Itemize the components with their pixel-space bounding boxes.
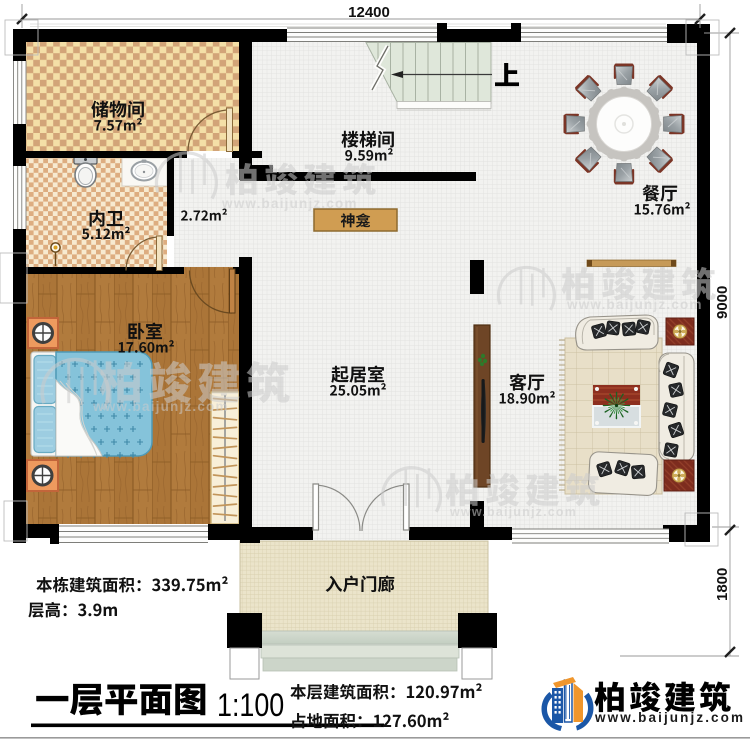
svg-text:1800: 1800 (714, 568, 731, 601)
svg-text:www.baijunjz.com: www.baijunjz.com (566, 297, 703, 312)
svg-text:1:100: 1:100 (217, 688, 284, 724)
svg-text:www.baijunjz.com: www.baijunjz.com (594, 710, 745, 725)
svg-text:www.baijunjz.com: www.baijunjz.com (449, 505, 577, 519)
svg-text:9000: 9000 (714, 286, 731, 319)
svg-text:www.baijunjz.com: www.baijunjz.com (221, 196, 358, 211)
svg-text:12400: 12400 (348, 4, 390, 21)
svg-text:www.baijunjz.com: www.baijunjz.com (92, 399, 229, 414)
